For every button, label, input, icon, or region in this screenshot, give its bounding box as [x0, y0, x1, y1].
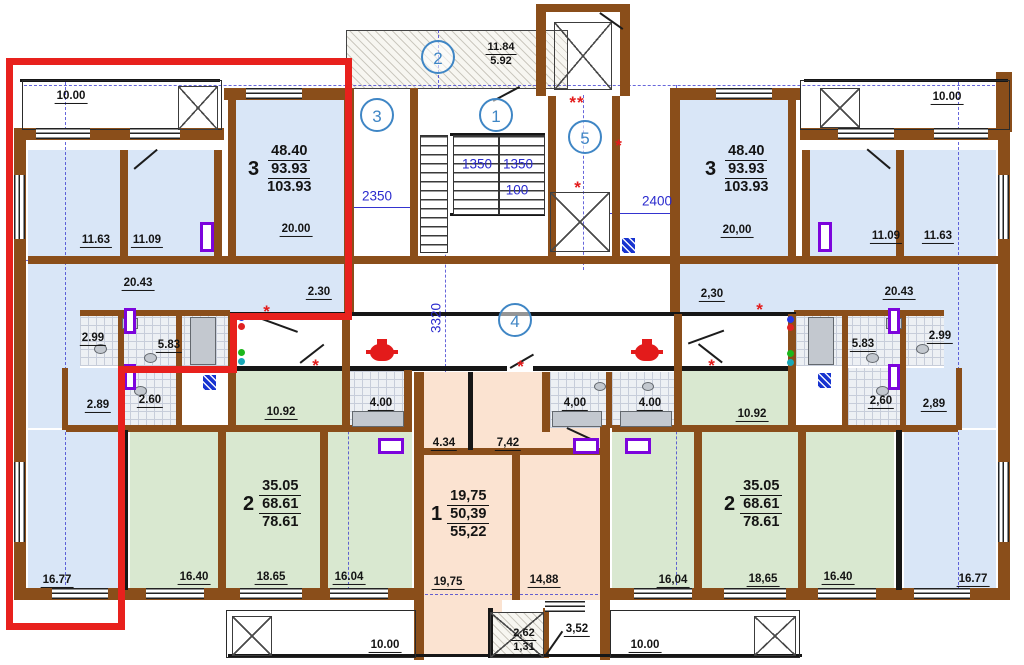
room — [904, 430, 996, 590]
toilet-fixture — [642, 382, 654, 391]
shaft-x-icon — [178, 86, 218, 130]
area-label: 20.00 — [280, 223, 313, 237]
wall — [794, 310, 944, 316]
area-value: 68.61 — [259, 496, 301, 514]
toilet-fixture — [866, 353, 879, 363]
tub-fixture — [352, 411, 404, 427]
area-label: 20.43 — [883, 286, 916, 300]
wall — [674, 314, 682, 426]
area-value: 5.92 — [488, 55, 513, 67]
area-label: 5.83 — [850, 338, 876, 352]
area-value: 50,39 — [447, 506, 489, 524]
area-label: 2.99 — [80, 332, 106, 346]
window — [146, 588, 204, 599]
door-swing — [688, 330, 724, 344]
window — [545, 601, 585, 612]
section-callout: 1 — [479, 98, 513, 132]
tub-fixture — [552, 411, 602, 427]
area-label: 11.09 — [870, 230, 902, 244]
area-value: 1,31 — [511, 641, 536, 653]
area-label: 18.65 — [255, 571, 288, 585]
wall — [80, 310, 230, 316]
area-label: 2,30 — [699, 288, 725, 302]
area-label: 11.63 — [80, 234, 112, 248]
area-value: 2,62 — [511, 627, 536, 641]
area-label: 20.43 — [122, 277, 155, 291]
area-label: 16,04 — [657, 574, 690, 588]
window — [14, 175, 25, 239]
area-value: 68.61 — [740, 496, 782, 514]
shaft-x-icon — [232, 616, 272, 656]
wall — [600, 425, 610, 660]
area-value: 103.93 — [721, 179, 771, 196]
apartment-stat: 119,7550,3955,22 — [431, 488, 489, 541]
status-dot — [787, 350, 794, 357]
wall — [28, 256, 998, 264]
area-label: 10.92 — [736, 408, 769, 422]
wall — [956, 368, 962, 430]
wall — [896, 150, 904, 262]
tub-fixture — [808, 317, 834, 365]
wall — [788, 100, 796, 260]
toilet-fixture — [594, 382, 606, 391]
highlight-outline — [230, 313, 237, 373]
stairs — [453, 135, 499, 215]
status-dot — [787, 324, 794, 331]
wall — [798, 430, 806, 590]
dimension-label: 1350 — [503, 157, 533, 172]
area-value: 93.93 — [268, 161, 310, 179]
window — [998, 462, 1009, 542]
apartment-number: 3 — [705, 158, 716, 181]
dimension-label: 2350 — [362, 189, 392, 204]
toilet-fixture — [916, 344, 929, 354]
area-value: 93.93 — [725, 161, 767, 179]
door-symbol — [888, 364, 900, 390]
shaft-x-icon — [820, 88, 860, 128]
wall — [120, 150, 128, 262]
area-fraction: 2,621,31 — [511, 627, 536, 653]
fire-marker: * — [574, 178, 582, 198]
door-symbol — [378, 438, 404, 454]
area-label: 4.34 — [431, 437, 457, 451]
wall — [232, 366, 412, 371]
room — [806, 430, 894, 590]
window — [36, 128, 90, 139]
area-label: 2.99 — [927, 330, 953, 344]
wall — [342, 314, 350, 426]
area-label: 2.89 — [85, 399, 111, 413]
wall — [542, 372, 550, 432]
area-label: 3,52 — [564, 623, 590, 637]
area-label: 2,60 — [868, 395, 894, 409]
area-label: 5.83 — [156, 339, 182, 353]
room — [28, 262, 344, 314]
apartment-stat: 348.4093.93103.93 — [705, 143, 771, 196]
fire-marker: ** — [569, 93, 584, 113]
section-callout: 5 — [568, 120, 602, 154]
area-label: 18,65 — [747, 573, 780, 587]
area-label: 10.92 — [265, 406, 298, 420]
window — [716, 88, 772, 99]
shaft-x-icon — [550, 192, 610, 252]
area-label: 20,00 — [721, 224, 754, 238]
area-value: 103.93 — [264, 179, 314, 196]
window — [240, 588, 302, 599]
tub-fixture — [190, 317, 216, 365]
room — [612, 430, 696, 590]
wall — [694, 430, 702, 590]
apartment-number: 2 — [724, 493, 735, 516]
fire-marker: * — [615, 136, 623, 156]
area-label: 2.30 — [306, 286, 332, 300]
window — [634, 588, 692, 599]
wall — [896, 430, 902, 590]
room — [28, 430, 120, 590]
door-symbol — [625, 438, 651, 454]
hatched-balcony — [346, 30, 568, 89]
window — [130, 128, 180, 139]
wall — [410, 88, 418, 264]
area-value: 48.40 — [268, 143, 310, 161]
area-value: 35.05 — [740, 478, 782, 496]
area-value: 11.84 — [486, 41, 517, 55]
status-dot — [238, 323, 245, 330]
area-label: 11.63 — [922, 230, 954, 244]
area-label: 10.00 — [369, 639, 402, 653]
apartment-number: 3 — [248, 158, 259, 181]
door-symbol — [124, 308, 136, 334]
hydrant-icon — [635, 344, 659, 361]
area-label: 4.00 — [368, 397, 394, 411]
highlight-outline — [6, 58, 352, 65]
floor-plan: 10.0011.6311.0920.002.3020.432.995.832.8… — [0, 0, 1024, 665]
axis-line — [958, 82, 959, 600]
wall — [414, 372, 424, 432]
window — [934, 128, 988, 139]
area-label: 16.40 — [178, 571, 211, 585]
area-value: 78.61 — [259, 514, 301, 531]
area-label: 19,75 — [432, 576, 465, 590]
wall — [536, 4, 630, 12]
vent-icon — [203, 375, 216, 390]
area-label: 7,42 — [495, 437, 521, 451]
wall — [612, 96, 620, 256]
section-callout: 4 — [498, 303, 532, 337]
section-callout: 3 — [360, 98, 394, 132]
stairs — [420, 135, 448, 253]
area-label: 2,89 — [921, 398, 947, 412]
tub-fixture — [620, 411, 672, 427]
status-dot — [787, 316, 794, 323]
toilet-fixture — [144, 353, 157, 363]
window — [914, 588, 970, 599]
status-dot — [787, 359, 794, 366]
dimension-line — [352, 207, 414, 208]
area-value: 48.40 — [725, 143, 767, 161]
area-label: 10.00 — [55, 90, 88, 104]
wall — [536, 4, 546, 96]
wall — [468, 372, 473, 450]
window — [52, 588, 108, 599]
wall — [62, 368, 68, 430]
area-value: 19,75 — [447, 488, 489, 506]
stairs — [499, 135, 545, 215]
area-label: 10.00 — [629, 639, 662, 653]
apartment-stat: 235.0568.6178.61 — [243, 478, 301, 531]
window — [330, 588, 388, 599]
wall — [842, 368, 848, 430]
room — [130, 430, 218, 590]
wall — [612, 366, 792, 371]
dimension-label: 100 — [506, 183, 529, 198]
apartment-number: 1 — [431, 503, 442, 526]
wall — [412, 366, 507, 371]
window — [724, 588, 786, 599]
shaft-x-icon — [554, 22, 612, 90]
area-label: 16.40 — [822, 571, 855, 585]
apartment-number: 2 — [243, 493, 254, 516]
area-value: 35.05 — [259, 478, 301, 496]
dimension-label: 3320 — [429, 303, 444, 333]
wall — [802, 150, 810, 262]
wall — [320, 430, 328, 590]
wall — [228, 100, 236, 260]
fire-marker: * — [756, 300, 764, 320]
highlight-outline — [118, 366, 237, 373]
area-label: 2.60 — [137, 394, 163, 408]
wall — [533, 366, 612, 371]
highlight-outline — [345, 58, 352, 320]
room — [328, 430, 412, 590]
vent-icon — [622, 238, 635, 253]
fire-marker: * — [517, 357, 525, 377]
area-label: 4.00 — [637, 397, 663, 411]
wall — [214, 150, 222, 262]
highlight-outline — [118, 366, 125, 630]
fire-marker: * — [312, 356, 320, 376]
fire-marker: * — [708, 356, 716, 376]
door-symbol — [200, 222, 214, 252]
area-label: 16.77 — [957, 573, 990, 587]
wall — [512, 450, 520, 600]
hydrant-icon — [370, 344, 394, 361]
wall — [842, 314, 848, 368]
area-value: 55,22 — [447, 524, 489, 541]
window — [818, 588, 876, 599]
highlight-outline — [230, 313, 352, 320]
wall — [404, 370, 412, 428]
wall — [620, 4, 630, 96]
axis-line — [65, 82, 66, 600]
wall — [606, 372, 612, 428]
wall — [218, 430, 226, 590]
window — [14, 462, 25, 542]
window — [838, 128, 894, 139]
apartment-stat: 348.4093.93103.93 — [248, 143, 314, 196]
area-label: 16.04 — [333, 571, 366, 585]
vent-icon — [818, 373, 831, 388]
area-label: 14,88 — [528, 574, 561, 588]
status-dot — [238, 358, 245, 365]
area-label: 16.77 — [41, 574, 74, 588]
apartment-stat: 235.0568.6178.61 — [724, 478, 782, 531]
door-symbol — [573, 438, 599, 454]
dimension-label: 1350 — [462, 157, 492, 172]
window — [998, 175, 1009, 239]
section-callout: 2 — [421, 40, 455, 74]
window — [246, 88, 302, 99]
area-label: 10.00 — [931, 91, 964, 105]
dimension-label: 2400 — [642, 194, 672, 209]
wall — [176, 368, 182, 430]
area-label: 4,00 — [562, 397, 588, 411]
highlight-outline — [6, 623, 125, 630]
area-value: 78.61 — [740, 514, 782, 531]
door-symbol — [818, 222, 832, 252]
area-fraction: 11.845.92 — [486, 41, 517, 67]
dimension-line — [610, 213, 678, 214]
highlight-outline — [6, 58, 13, 630]
status-dot — [238, 349, 245, 356]
door-symbol — [888, 308, 900, 334]
wall — [900, 368, 906, 430]
area-label: 11.09 — [131, 234, 163, 248]
shaft-x-icon — [754, 616, 796, 656]
room — [680, 262, 996, 314]
